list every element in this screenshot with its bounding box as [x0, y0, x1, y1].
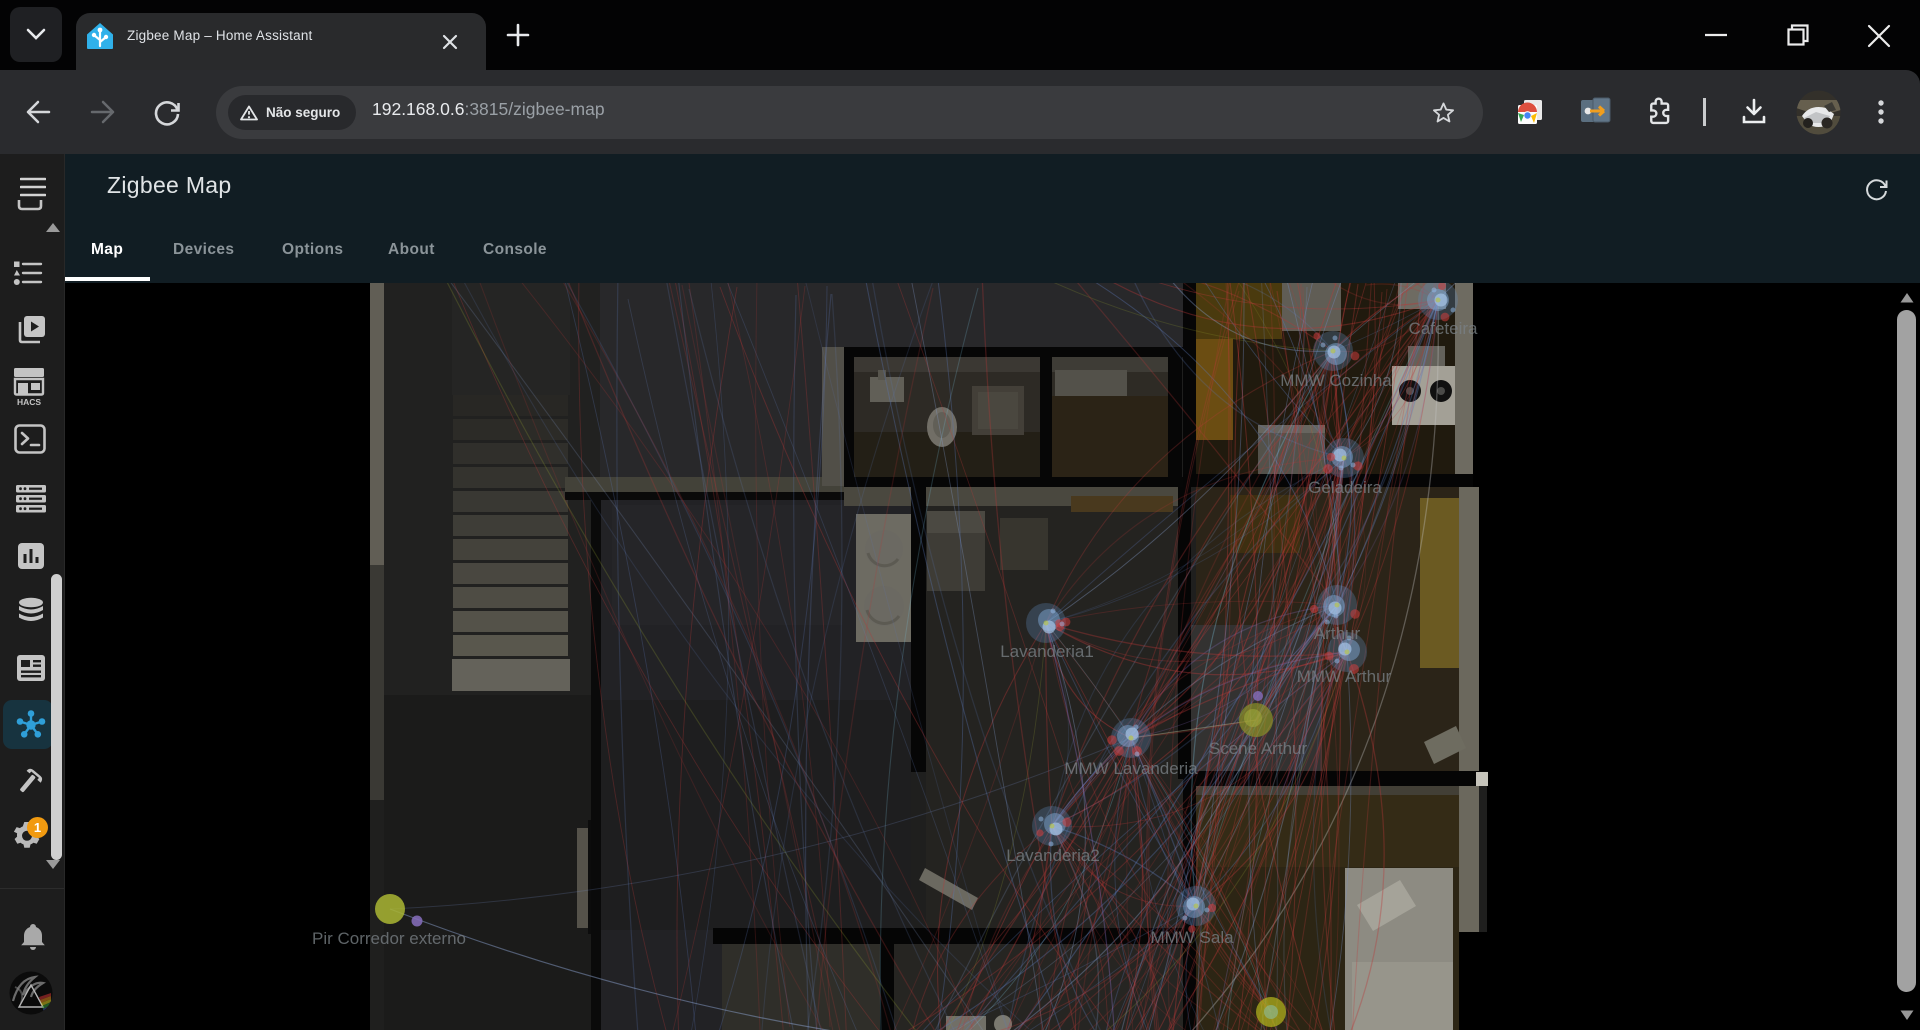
- svg-text:Pir Corredor externo: Pir Corredor externo: [312, 929, 466, 948]
- svg-text:Lavanderia1: Lavanderia1: [1000, 642, 1094, 661]
- svg-text:Arthur: Arthur: [1314, 624, 1361, 643]
- svg-text:MMW Arthur: MMW Arthur: [1297, 667, 1392, 686]
- svg-text:MMW Cozinha: MMW Cozinha: [1280, 371, 1392, 390]
- svg-text:Lavanderia2: Lavanderia2: [1006, 846, 1100, 865]
- svg-text:Geladeira: Geladeira: [1308, 478, 1382, 497]
- svg-text:MMW Lavanderia: MMW Lavanderia: [1064, 759, 1198, 778]
- svg-text:MMW Sala: MMW Sala: [1150, 928, 1234, 947]
- svg-text:HACS: HACS: [17, 397, 41, 406]
- svg-text:Scene Arthur: Scene Arthur: [1209, 739, 1308, 758]
- svg-text:Cafeteira: Cafeteira: [1409, 319, 1479, 338]
